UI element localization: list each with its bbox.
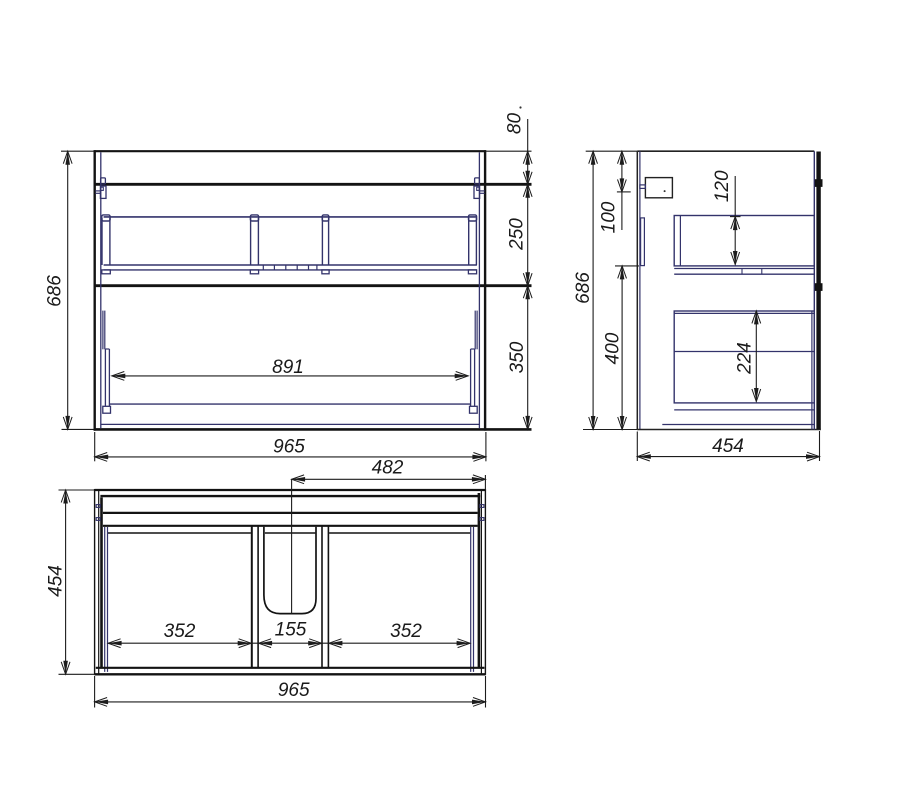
svg-text:350: 350 (507, 341, 528, 373)
svg-text:454: 454 (712, 436, 744, 457)
svg-text:686: 686 (45, 275, 66, 307)
svg-text:965: 965 (273, 436, 305, 457)
svg-text:965: 965 (278, 680, 310, 701)
svg-text:155: 155 (275, 619, 307, 640)
svg-text:100: 100 (599, 201, 620, 233)
svg-text:400: 400 (602, 332, 623, 364)
svg-text:686: 686 (573, 272, 594, 304)
svg-text:352: 352 (164, 621, 196, 642)
svg-text:80: 80 (505, 113, 526, 135)
svg-text:120: 120 (712, 170, 733, 202)
svg-text:482: 482 (372, 458, 404, 479)
svg-text:250: 250 (507, 218, 528, 251)
svg-text:454: 454 (46, 565, 67, 597)
svg-text:352: 352 (390, 621, 422, 642)
svg-text:891: 891 (272, 357, 304, 378)
svg-text:224: 224 (735, 342, 756, 375)
